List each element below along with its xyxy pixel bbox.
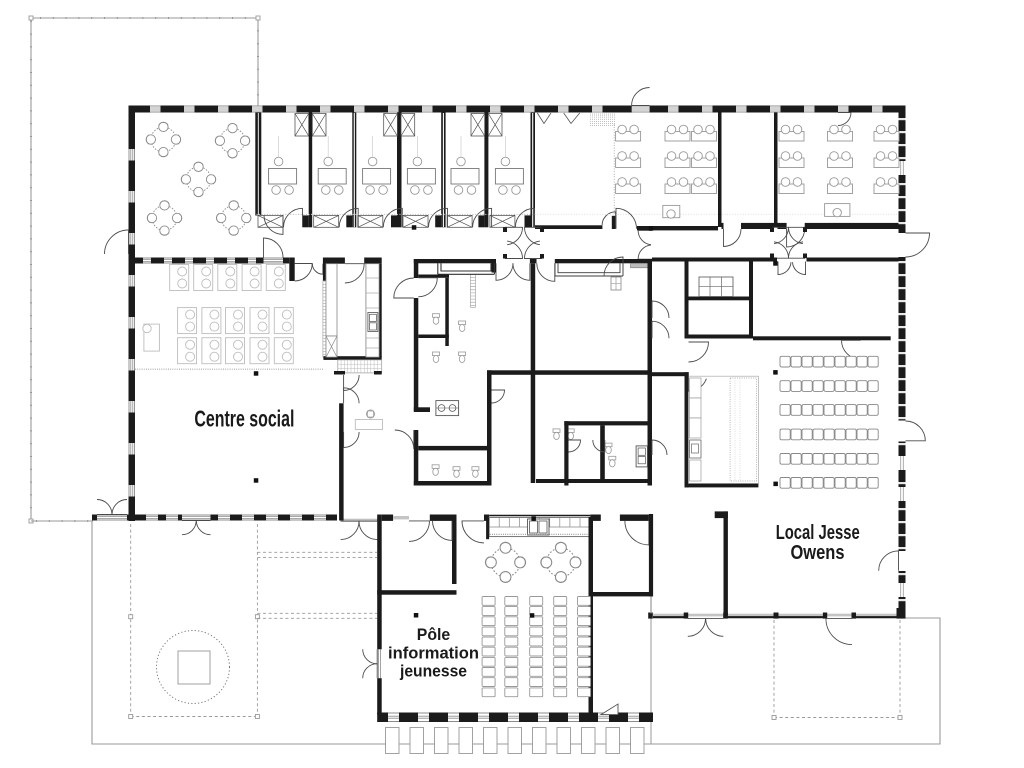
svg-text:Owens: Owens bbox=[791, 542, 845, 564]
svg-text:Local Jesse: Local Jesse bbox=[776, 522, 860, 544]
svg-text:jeunesse: jeunesse bbox=[399, 662, 467, 681]
svg-text:Centre social: Centre social bbox=[194, 406, 294, 432]
svg-text:Pôle: Pôle bbox=[417, 625, 451, 644]
svg-text:information: information bbox=[388, 643, 479, 662]
